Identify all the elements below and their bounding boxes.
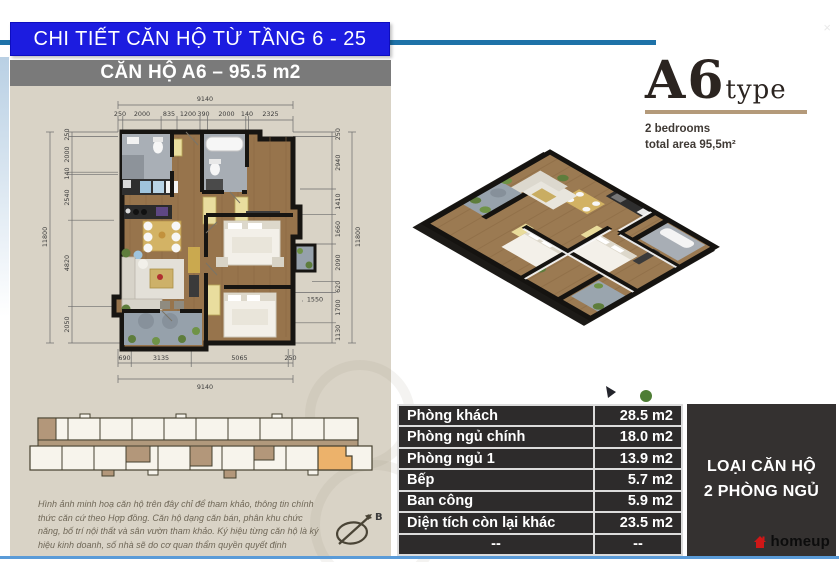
- floorplan-panel: CĂN HỘ A6 – 95.5 m2 9140 250 2000 835 12…: [10, 60, 391, 556]
- table-row: Phòng khách 28.5 m2: [399, 406, 681, 427]
- svg-text:4820: 4820: [63, 255, 71, 271]
- svg-text:2325: 2325: [262, 110, 278, 118]
- svg-text:250: 250: [114, 110, 126, 118]
- svg-text:11800: 11800: [354, 227, 362, 247]
- svg-text:250: 250: [284, 354, 296, 362]
- table-row: Phòng ngủ chính 18.0 m2: [399, 427, 681, 448]
- table-row: -- --: [399, 535, 681, 554]
- room-label: Ban công: [399, 493, 593, 509]
- svg-text:3135: 3135: [153, 354, 169, 362]
- svg-text:1200: 1200: [180, 110, 196, 118]
- svg-text:1700: 1700: [334, 299, 342, 315]
- svg-text:390: 390: [197, 110, 209, 118]
- table-row: Bếp 5.7 m2: [399, 470, 681, 491]
- apartment-header-label: CĂN HỘ A6 – 95.5 m2: [100, 62, 300, 84]
- unit-type-box: LOẠI CĂN HỘ 2 PHÒNG NGỦ homeup: [687, 404, 836, 556]
- compass-icon: B: [332, 508, 384, 550]
- room-label: Phòng ngủ chính: [399, 429, 593, 445]
- svg-text:620: 620: [334, 281, 342, 293]
- svg-text:2000: 2000: [63, 146, 71, 162]
- svg-text:690: 690: [118, 354, 130, 362]
- apartment-3d-render: [398, 124, 732, 404]
- room-label: Phòng khách: [399, 408, 593, 424]
- svg-text:1550: 1550: [307, 296, 323, 304]
- page-title-banner: CHI TIẾT CĂN HỘ TỪ TẦNG 6 - 25: [10, 22, 390, 56]
- close-icon[interactable]: ×: [823, 20, 831, 35]
- svg-text:140: 140: [63, 167, 71, 179]
- svg-text:835: 835: [163, 110, 175, 118]
- table-row: Phòng ngủ 1 13.9 m2: [399, 449, 681, 470]
- svg-text:250: 250: [63, 128, 71, 140]
- apartment-header-bar: CĂN HỘ A6 – 95.5 m2: [10, 60, 391, 86]
- floorplan-2d: 9140 250 2000 835 1200 390 2000 140 2325…: [10, 87, 391, 409]
- page-title: CHI TIẾT CĂN HỘ TỪ TẦNG 6 - 25: [34, 28, 367, 51]
- room-area: 13.9 m2: [593, 449, 681, 468]
- apartment-detail-page: × CHI TIẾT CĂN HỘ TỪ TẦNG 6 - 25 CĂN HỘ …: [0, 0, 839, 562]
- bottom-blue-rule: [0, 556, 839, 559]
- svg-text:1410: 1410: [334, 193, 342, 209]
- svg-text:2000: 2000: [218, 110, 234, 118]
- svg-text:140: 140: [241, 110, 253, 118]
- room-area: 28.5 m2: [593, 406, 681, 425]
- room-label: Phòng ngủ 1: [399, 451, 593, 467]
- apartment-outline: [114, 132, 315, 349]
- room-area: 5.9 m2: [593, 492, 681, 511]
- svg-text:9140: 9140: [197, 383, 213, 391]
- left-accent-strip: [0, 57, 9, 317]
- svg-text:250: 250: [334, 128, 342, 140]
- dim-top-total: 9140: [197, 95, 213, 103]
- room-label: Diện tích còn lại khác: [399, 515, 593, 531]
- room-area-table: Phòng khách 28.5 m2 Phòng ngủ chính 18.0…: [397, 404, 683, 556]
- svg-text:2940: 2940: [334, 155, 342, 171]
- brand-logo: homeup: [752, 533, 830, 550]
- unit-type-title: A6type: [645, 55, 815, 107]
- room-area: 23.5 m2: [593, 513, 681, 532]
- room-label: Bếp: [399, 472, 593, 488]
- svg-text:2090: 2090: [334, 254, 342, 270]
- room-area: 5.7 m2: [593, 470, 681, 489]
- svg-text:1130: 1130: [334, 325, 342, 341]
- table-row: Ban công 5.9 m2: [399, 492, 681, 513]
- svg-text:2000: 2000: [134, 110, 150, 118]
- unit-code-suffix: type: [726, 75, 787, 105]
- brand-name: homeup: [770, 533, 830, 550]
- table-row: Diện tích còn lại khác 23.5 m2: [399, 513, 681, 534]
- unit-code: A6: [645, 50, 726, 111]
- svg-text:2050: 2050: [63, 316, 71, 332]
- svg-text:2540: 2540: [63, 189, 71, 205]
- svg-text:5065: 5065: [231, 354, 247, 362]
- svg-text:11800: 11800: [41, 227, 49, 247]
- svg-text:B: B: [375, 512, 383, 523]
- homeup-house-icon: [752, 534, 768, 550]
- room-area: 18.0 m2: [593, 427, 681, 446]
- disclaimer-text: Hình ảnh minh hoạ căn hộ trên đây chỉ để…: [38, 498, 326, 552]
- unit-type-line1: LOẠI CĂN HỘ: [704, 455, 819, 480]
- unit-type-line2: 2 PHÒNG NGỦ: [704, 480, 819, 505]
- svg-text:1660: 1660: [334, 221, 342, 237]
- room-area: --: [593, 535, 681, 554]
- room-label: --: [399, 536, 593, 552]
- building-keyplan: [28, 412, 374, 484]
